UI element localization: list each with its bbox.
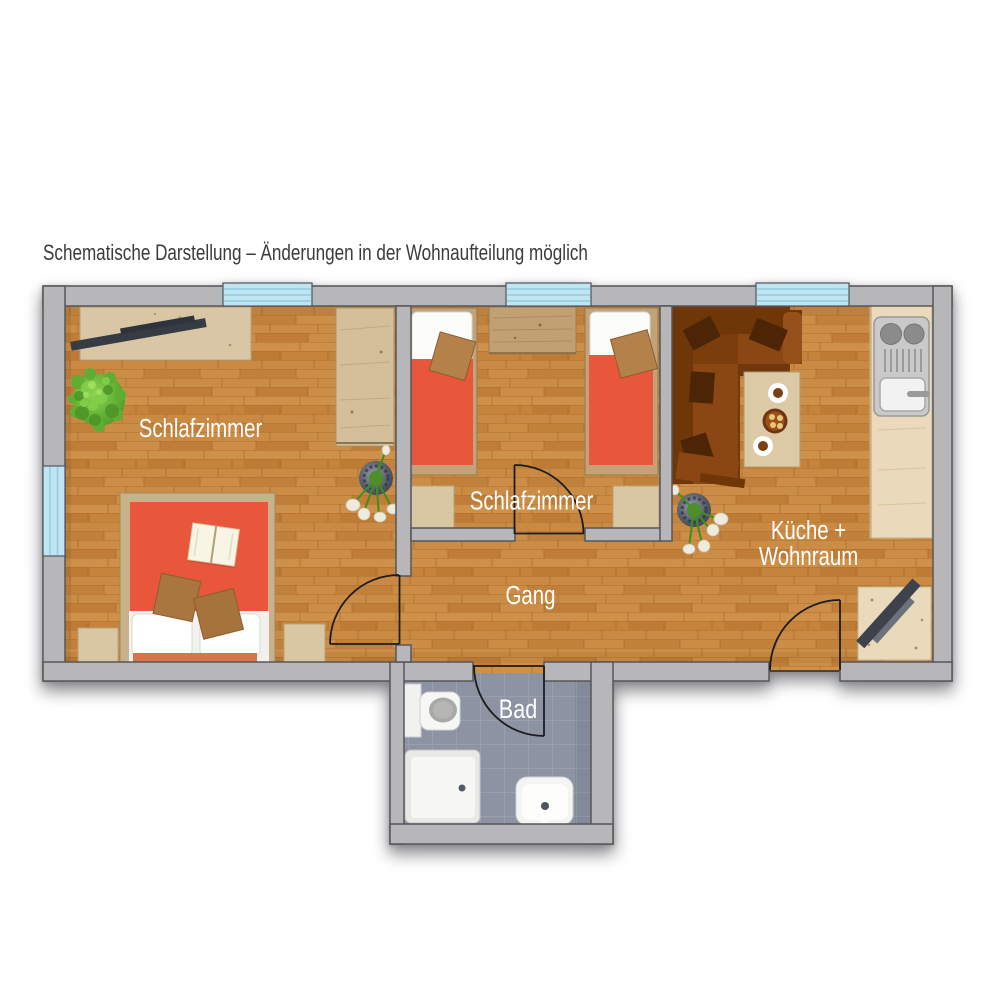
svg-text:Küche +: Küche + bbox=[771, 516, 846, 545]
svg-text:Gang: Gang bbox=[506, 581, 556, 610]
svg-text:Schlafzimmer: Schlafzimmer bbox=[470, 486, 594, 515]
svg-text:Schlafzimmer: Schlafzimmer bbox=[139, 414, 263, 443]
svg-text:Bad: Bad bbox=[499, 695, 537, 725]
svg-text:Schematische Darstellung – Änd: Schematische Darstellung – Änderungen in… bbox=[43, 241, 588, 266]
svg-text:Wohnraum: Wohnraum bbox=[759, 542, 858, 571]
